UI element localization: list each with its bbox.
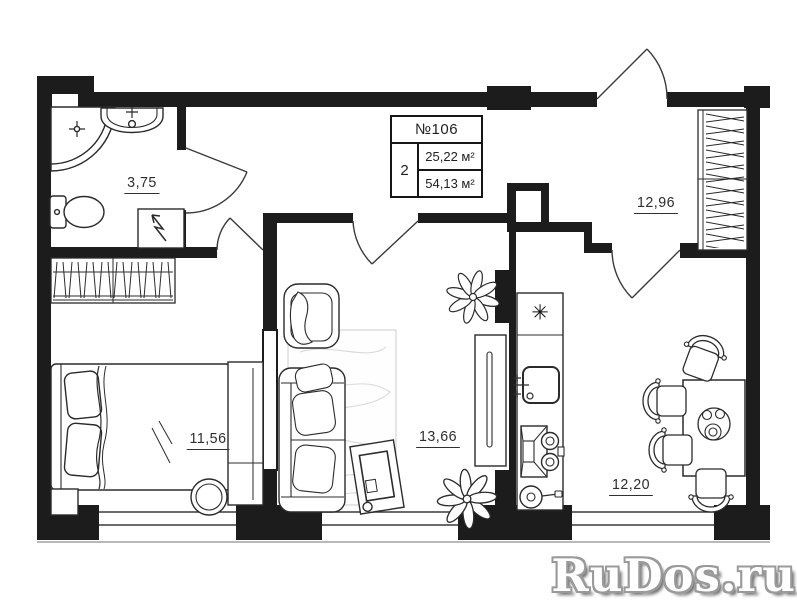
bedroom-closet — [51, 258, 175, 303]
hall-area-label: 12,96 — [634, 194, 678, 214]
fridge-icon: ✳ — [531, 301, 549, 326]
bathroom-area-label: 3,75 — [124, 174, 159, 194]
bedroom-area-label: 11,56 — [187, 430, 230, 450]
watermark: RuDos.ru — [551, 551, 796, 600]
window-living — [322, 512, 458, 525]
floor-plan-svg — [0, 0, 797, 600]
bedroom-furniture — [51, 362, 263, 515]
bathroom-fixtures — [50, 107, 184, 248]
chair — [643, 379, 686, 423]
living-room-furniture — [279, 264, 509, 541]
unit-info-box: №106 2 25,22 м² 54,13 м² — [390, 115, 483, 198]
sofa — [279, 363, 345, 512]
media-console — [475, 335, 506, 466]
windows — [37, 512, 770, 542]
kitchen-door — [612, 250, 680, 298]
armchair — [284, 284, 339, 348]
window-kitchen — [572, 512, 714, 525]
bed — [51, 364, 231, 490]
rooms-count: 2 — [392, 144, 419, 196]
bedroom-door — [217, 218, 263, 250]
living-area-value: 25,22 м² — [419, 144, 481, 171]
total-area-value: 54,13 м² — [419, 171, 481, 196]
living-room-door — [353, 221, 418, 264]
tall-cabinet — [228, 362, 263, 505]
bathroom-sink — [101, 107, 163, 133]
chair — [675, 329, 731, 385]
unit-number: №106 — [392, 117, 481, 144]
chair — [689, 469, 733, 512]
living-room-area-label: 13,66 — [416, 428, 460, 448]
hall-wardrobe — [698, 110, 747, 250]
bathroom-door — [186, 148, 247, 213]
nightstand — [51, 489, 78, 515]
pouf — [191, 479, 227, 515]
chair — [649, 428, 692, 472]
toilet — [50, 196, 104, 228]
entrance-door — [597, 49, 667, 99]
floor-plan: №106 2 25,22 м² 54,13 м² 3,75 11,56 13,6… — [0, 0, 797, 600]
kitchen-area-label: 12,20 — [609, 476, 653, 496]
electrical-panel — [138, 209, 184, 248]
